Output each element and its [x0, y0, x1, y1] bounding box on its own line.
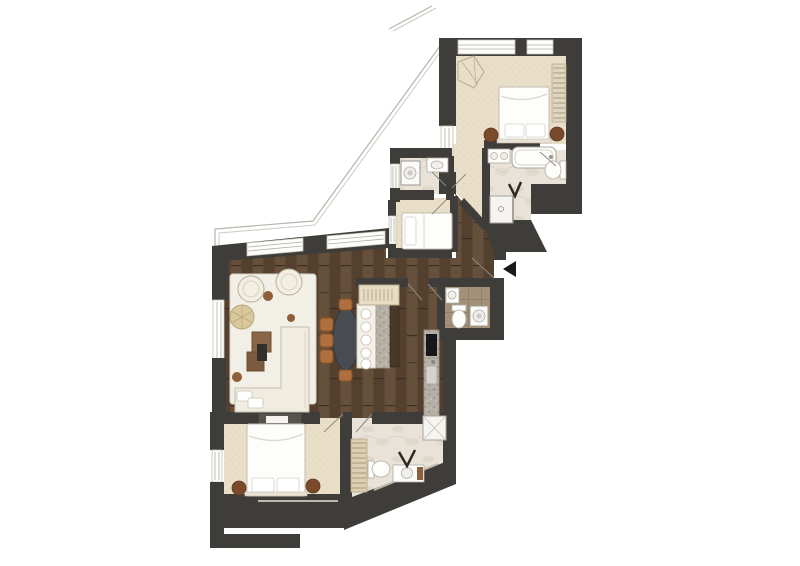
dining-chair-5	[339, 370, 352, 381]
dining-chair-1	[320, 318, 333, 331]
dining-chair-4	[339, 299, 352, 310]
wall-living-west-lower	[212, 358, 226, 416]
wc-sink-basin	[448, 291, 456, 299]
tv-screen	[266, 416, 288, 423]
ensuite-shower	[490, 196, 513, 223]
boundary-line-2	[393, 8, 436, 31]
lower-bed-pillow-1	[252, 478, 274, 492]
wall-top-west-upper	[439, 38, 456, 126]
master-bed-pillow-2	[526, 124, 545, 137]
laundry-sink-basin	[431, 161, 443, 169]
entry-arrow	[503, 261, 516, 277]
cooktop	[426, 334, 437, 356]
wall-bedroom-bath-lower	[340, 418, 352, 502]
window-top-north-2	[527, 40, 553, 54]
lower-headboard	[245, 492, 307, 496]
floor-plan-svg	[0, 0, 800, 566]
wall-bedroom-lower-south	[222, 494, 348, 528]
boundary-line	[389, 6, 432, 29]
wall-laundry-north	[394, 148, 452, 158]
window-bedroom-lower-west	[212, 450, 222, 482]
lower-vanity-basin	[402, 468, 413, 479]
master-headboard	[497, 139, 551, 143]
wall-kitchen-east	[443, 338, 456, 418]
lower-toilet-bowl	[372, 461, 390, 477]
side-ottoman	[263, 291, 273, 301]
window-top-north-1	[458, 40, 515, 54]
nightstand-lower-right	[306, 479, 320, 493]
washer-entry-door	[477, 314, 482, 319]
island-plate-3	[361, 335, 371, 345]
wall-bath-step	[531, 184, 582, 214]
kitchen-faucet	[431, 360, 435, 364]
dining-chair-3	[320, 350, 333, 363]
ensuite-vanity-basin-2	[501, 153, 508, 160]
lower-vanity-tray	[417, 467, 423, 480]
nightstand-lower-left	[232, 481, 246, 495]
armchair-2	[276, 269, 302, 295]
kitchen-buffet	[359, 285, 399, 305]
island-plate-4	[361, 348, 371, 358]
wall-wc-west	[437, 284, 445, 332]
dining-chair-2	[320, 334, 333, 347]
island-counter-granite	[376, 304, 390, 368]
wall-foot-south	[210, 534, 300, 548]
wall-single-west-upper	[388, 200, 396, 216]
washer-laundry-door	[408, 171, 413, 176]
sofa-pillow-2	[248, 398, 263, 408]
window-laundry-west	[391, 164, 399, 190]
lower-bed-pillow-2	[277, 478, 299, 492]
deco-pot-1	[287, 314, 295, 322]
wall-laundry-single-a	[394, 190, 434, 200]
island-plate-2	[361, 322, 371, 332]
coffee-tray	[257, 344, 267, 361]
island-plate-1	[361, 309, 371, 319]
wall-entry-jamb	[494, 252, 506, 260]
window-living-west	[213, 300, 224, 360]
island-cabinet-edge	[390, 305, 399, 367]
deco-pot-2	[232, 372, 242, 382]
wc-toilet-bowl	[452, 310, 466, 328]
closet-lower	[351, 439, 367, 492]
wall-laundry-west-upper	[390, 148, 400, 164]
armchair-1	[238, 276, 264, 302]
dining-table	[333, 308, 359, 370]
nightstand-master-right	[550, 127, 564, 141]
master-bed-pillow-1	[505, 124, 524, 137]
window-single-west	[389, 216, 396, 244]
floor-plan-page	[0, 0, 800, 566]
nightstand-master-left	[484, 128, 498, 142]
island-plate-5	[361, 359, 371, 369]
wall-laundry-lobby	[448, 156, 454, 188]
wall-living-west-upper	[212, 246, 228, 300]
kitchen-sink	[426, 366, 437, 384]
bathtub-faucet	[549, 155, 553, 159]
ensuite-vanity-basin-1	[491, 153, 498, 160]
single-bed-pillow	[405, 217, 416, 245]
wall-bedroom-lower-west-a	[210, 412, 224, 450]
